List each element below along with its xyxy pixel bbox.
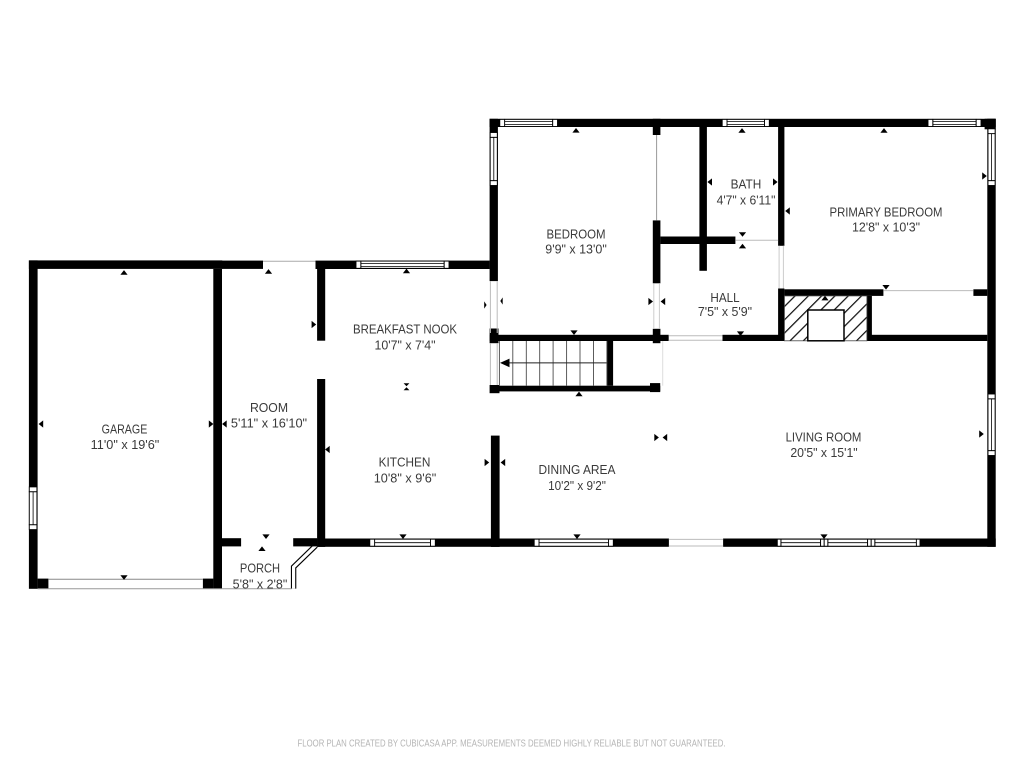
svg-text:HALL: HALL xyxy=(710,291,739,305)
svg-text:BREAKFAST NOOK: BREAKFAST NOOK xyxy=(353,323,458,337)
svg-text:PRIMARY BEDROOM: PRIMARY BEDROOM xyxy=(830,206,943,220)
svg-text:12'8" x 10'3": 12'8" x 10'3" xyxy=(852,221,920,235)
svg-text:20'5" x 15'1": 20'5" x 15'1" xyxy=(790,446,857,460)
svg-text:BEDROOM: BEDROOM xyxy=(546,228,605,242)
svg-text:10'2" x 9'2": 10'2" x 9'2" xyxy=(548,479,606,493)
svg-text:DINING AREA: DINING AREA xyxy=(539,463,617,477)
svg-text:LIVING ROOM: LIVING ROOM xyxy=(786,431,862,445)
svg-text:FLOOR PLAN CREATED BY CUBICASA: FLOOR PLAN CREATED BY CUBICASA APP. MEAS… xyxy=(298,739,726,750)
svg-text:9'9" x 13'0": 9'9" x 13'0" xyxy=(545,243,607,257)
svg-text:PORCH: PORCH xyxy=(240,562,280,576)
svg-text:5'11" x 16'10": 5'11" x 16'10" xyxy=(231,417,307,431)
svg-text:10'8" x 9'6": 10'8" x 9'6" xyxy=(374,472,437,486)
svg-text:ROOM: ROOM xyxy=(250,401,288,415)
svg-text:5'8" x 2'8": 5'8" x 2'8" xyxy=(233,578,288,592)
svg-text:GARAGE: GARAGE xyxy=(102,423,148,437)
svg-text:BATH: BATH xyxy=(731,178,762,192)
svg-text:7'5" x 5'9": 7'5" x 5'9" xyxy=(698,305,752,319)
svg-text:10'7" x 7'4": 10'7" x 7'4" xyxy=(375,339,436,353)
svg-text:KITCHEN: KITCHEN xyxy=(379,456,431,470)
svg-text:11'0" x 19'6": 11'0" x 19'6" xyxy=(91,438,160,452)
svg-text:4'7" x 6'11": 4'7" x 6'11" xyxy=(717,194,776,208)
